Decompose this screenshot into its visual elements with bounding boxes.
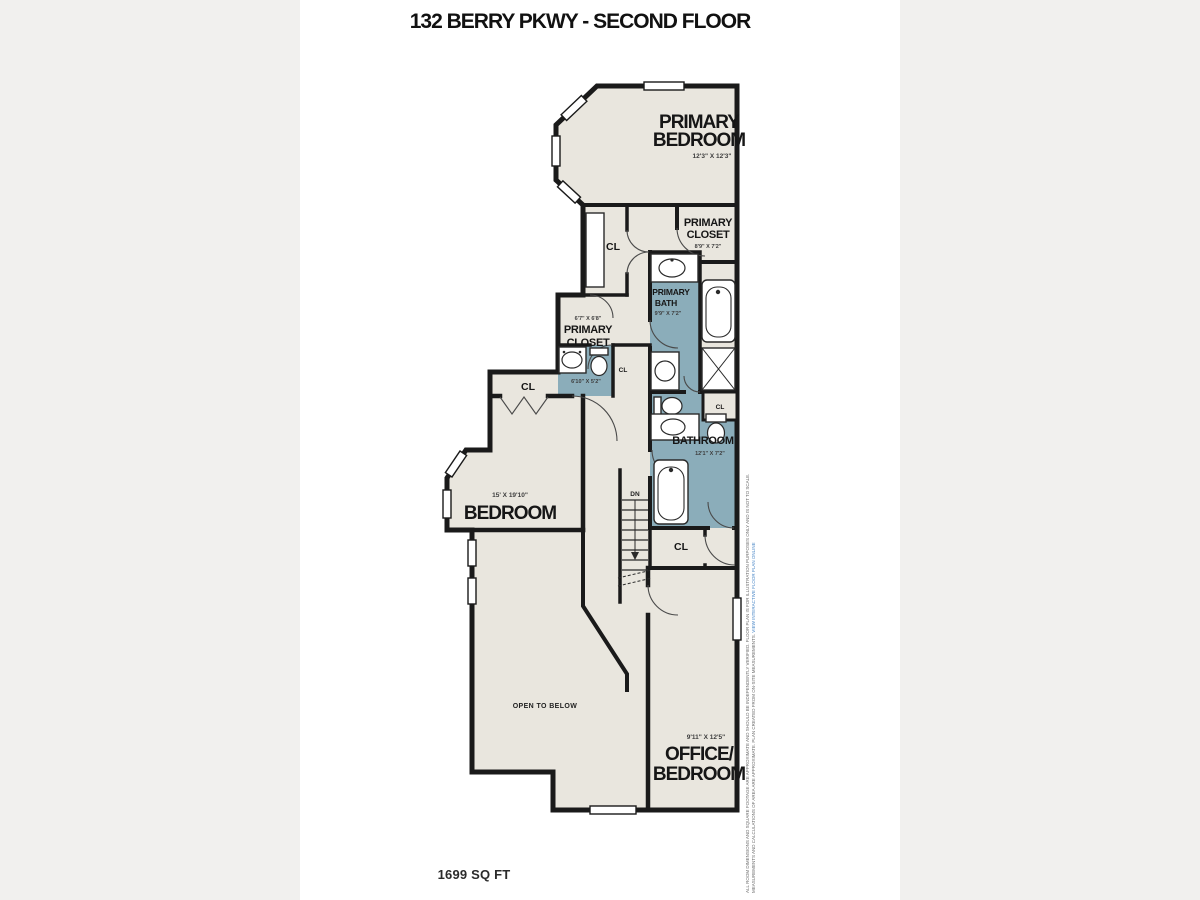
stairs-down-label: DN <box>630 491 640 498</box>
faucet-icon <box>670 258 673 261</box>
floor-plan: 132 BERRY PKWY - SECOND FLOOR PRIMARY BE… <box>0 0 1200 900</box>
bedroom-dims: 15' X 19'10" <box>492 492 528 499</box>
closet-box-label: CL <box>716 404 725 411</box>
half-bath-dims: 6'10" X 5'2" <box>571 379 601 385</box>
primary-closet-right-label: PRIMARY <box>684 217 733 229</box>
primary-closet-right-dims: 8'9" X 7'2" <box>695 244 722 250</box>
office-bedroom-dims: 9'11" X 12'5" <box>687 734 726 741</box>
disclaimer-watermark: ALL ROOM DIMENSIONS AND SQUARE FOOTAGE A… <box>745 474 756 893</box>
svg-text:BATH: BATH <box>655 298 677 308</box>
bathroom-label: BATHROOM <box>672 435 734 447</box>
svg-text:BEDROOM: BEDROOM <box>653 764 745 785</box>
sink-icon <box>655 361 675 381</box>
svg-text:BEDROOM: BEDROOM <box>653 130 745 151</box>
faucet-icon <box>716 290 720 294</box>
open-to-below-label: OPEN TO BELOW <box>513 703 578 710</box>
bedroom-label: BEDROOM <box>464 503 556 524</box>
bathtub-icon <box>702 280 735 342</box>
primary-bath-label: PRIMARY <box>652 287 690 297</box>
window <box>443 490 451 518</box>
window <box>733 598 741 640</box>
svg-text:CLOSET: CLOSET <box>567 337 610 349</box>
wardrobe <box>586 213 604 287</box>
primary-closet-left-dims: 6'7" X 6'8" <box>575 316 602 322</box>
sink-icon <box>661 419 685 435</box>
total-area-label: 1699 SQ FT <box>438 867 511 882</box>
primary-bedroom-dims: 12'3" X 12'3" <box>693 153 732 160</box>
bathroom-dims: 12'1" X 7'2" <box>695 451 725 457</box>
toilet-icon <box>662 398 682 415</box>
floor-plan-page: 132 BERRY PKWY - SECOND FLOOR PRIMARY BE… <box>0 0 1200 900</box>
window <box>590 806 636 814</box>
disclaimer-line-2: MEASUREMENTS AND CALCULATIONS OF AREA AR… <box>751 542 756 893</box>
primary-bath-dims: 9'9" X 7'2" <box>655 311 682 317</box>
closet-below-bathroom-label: CL <box>674 541 689 553</box>
window <box>552 136 560 166</box>
window <box>468 578 476 604</box>
disclaimer-link: VIEW INTERACTIVE FLOOR PLAN ONLINE <box>751 542 756 632</box>
faucet-icon <box>669 468 673 472</box>
toilet-icon <box>591 357 607 376</box>
sink-icon <box>659 259 685 277</box>
window <box>644 82 684 90</box>
bedroom-closet-label: CL <box>521 381 536 393</box>
window <box>468 540 476 566</box>
toilet-icon <box>706 414 726 422</box>
sink-icon <box>562 352 582 368</box>
toilet-icon <box>654 397 661 415</box>
svg-text:CLOSET: CLOSET <box>687 229 730 241</box>
office-bedroom-label: OFFICE/ <box>665 744 735 765</box>
closet-nook-label: CL <box>619 367 628 374</box>
toilet-icon <box>590 348 608 355</box>
page-title: 132 BERRY PKWY - SECOND FLOOR <box>410 10 751 33</box>
disclaimer-line-1: ALL ROOM DIMENSIONS AND SQUARE FOOTAGE A… <box>745 474 750 893</box>
primary-closet-left-label: PRIMARY <box>564 324 613 336</box>
hall-closet-label: CL <box>606 241 621 253</box>
